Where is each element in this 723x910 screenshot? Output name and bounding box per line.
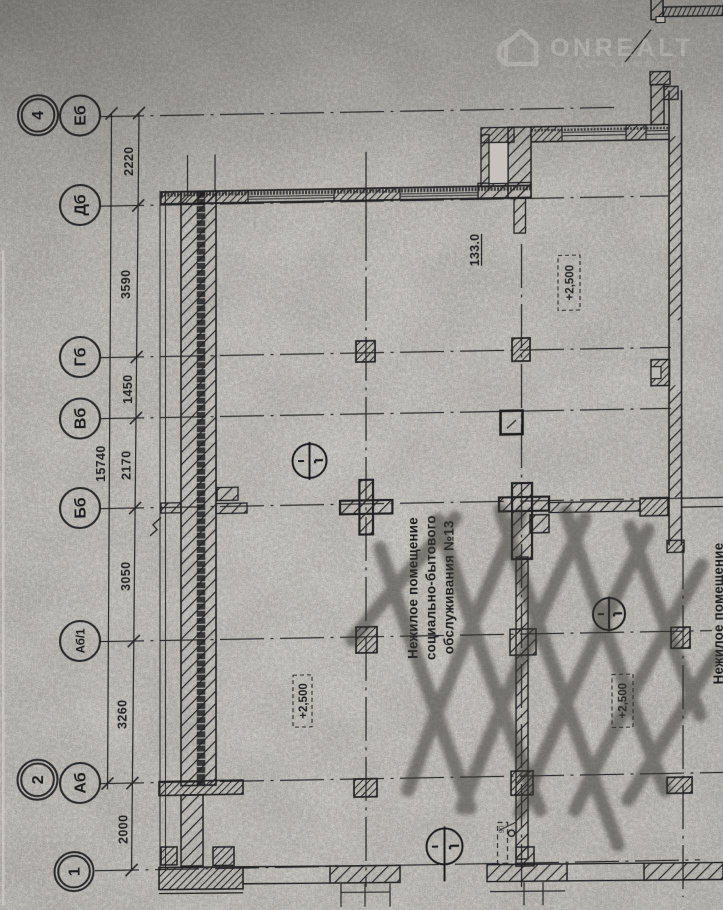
svg-text:Бб: Бб (73, 497, 90, 519)
svg-text:90: 90 (499, 825, 506, 833)
svg-text:2170: 2170 (120, 450, 134, 480)
svg-text:3590: 3590 (119, 269, 133, 299)
svg-text:3050: 3050 (119, 561, 133, 591)
svg-text:2: 2 (30, 775, 47, 784)
svg-text:133.0: 133.0 (468, 233, 482, 266)
svg-text:Гб: Гб (73, 347, 90, 366)
svg-text:2220: 2220 (122, 146, 136, 176)
svg-text:Еб: Еб (73, 105, 90, 126)
svg-text:Аб: Аб (73, 772, 90, 794)
svg-text:2000: 2000 (117, 814, 131, 844)
svg-text:4: 4 (30, 111, 47, 120)
svg-text:Дб: Дб (73, 194, 90, 216)
svg-text:+2,500: +2,500 (298, 683, 310, 719)
svg-text:Вб: Вб (73, 407, 90, 429)
svg-text:3260: 3260 (116, 699, 130, 729)
svg-text:НЕДВИЖИМОСТЬ: НЕДВИЖИМОСТЬ (553, 59, 689, 69)
svg-text:ONREALT: ONREALT (550, 34, 694, 62)
svg-text:1: 1 (67, 867, 84, 876)
svg-text:Аб/1: Аб/1 (76, 628, 88, 654)
svg-text:+2,500: +2,500 (565, 265, 577, 301)
svg-text:1450: 1450 (121, 374, 135, 404)
svg-text:15740: 15740 (94, 445, 108, 482)
